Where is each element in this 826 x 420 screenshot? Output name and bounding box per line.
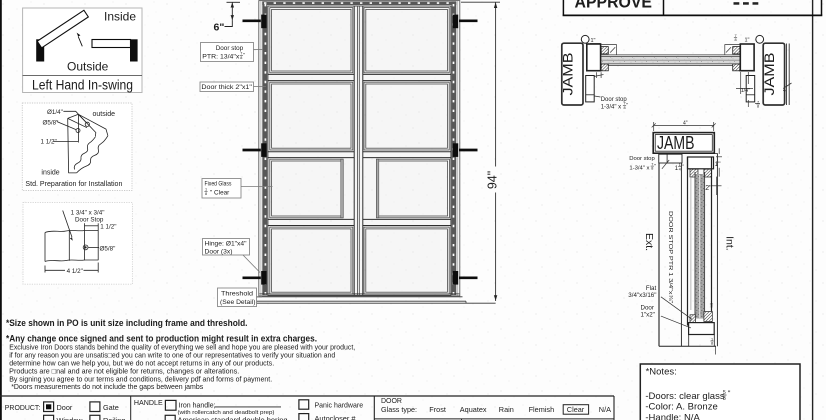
svg-text:Door stop: Door stop bbox=[629, 156, 655, 162]
svg-text:1-3/4" x: 1-3/4" x bbox=[629, 165, 649, 171]
svg-text:-Color: A. Bronze: -Color: A. Bronze bbox=[645, 402, 717, 413]
svg-text:Door (3x): Door (3x) bbox=[205, 249, 233, 256]
svg-text:Ø1/4": Ø1/4" bbox=[47, 109, 63, 116]
svg-text:Int.: Int. bbox=[724, 236, 736, 251]
svg-text:1 1/2": 1 1/2" bbox=[100, 223, 116, 230]
svg-text:Ø5/8": Ø5/8" bbox=[100, 245, 116, 252]
svg-text:Ext.: Ext. bbox=[643, 233, 655, 251]
svg-text:Flat: Flat bbox=[646, 285, 657, 292]
svg-text:Window: Window bbox=[57, 416, 84, 420]
svg-text:N/A: N/A bbox=[599, 405, 611, 414]
svg-text:Std. Preparation for Installat: Std. Preparation for Installation bbox=[25, 179, 122, 188]
svg-text:if for any reason you are unsa: if for any reason you are unsatis□ed you… bbox=[9, 351, 335, 359]
svg-text:Panic hardware: Panic hardware bbox=[315, 403, 364, 410]
svg-text:1"x2": 1"x2" bbox=[641, 312, 655, 319]
svg-text:Outside: Outside bbox=[67, 60, 109, 74]
svg-text:Door: Door bbox=[57, 403, 73, 412]
svg-text:Door: Door bbox=[641, 304, 654, 311]
svg-text:4": 4" bbox=[683, 121, 688, 127]
svg-text:": " bbox=[654, 164, 656, 170]
svg-text:Flemish: Flemish bbox=[529, 405, 555, 414]
svg-text:JAMB: JAMB bbox=[559, 53, 575, 96]
svg-text:Fixed Glass: Fixed Glass bbox=[205, 181, 232, 188]
svg-text:94": 94" bbox=[486, 171, 500, 189]
svg-text:By signing you agree to our te: By signing you agree to our terms and co… bbox=[9, 375, 272, 383]
svg-text:Clear: Clear bbox=[567, 405, 585, 414]
svg-text:1": 1" bbox=[745, 38, 750, 44]
svg-text:(with rollercatch and deadbolt: (with rollercatch and deadbolt prep) bbox=[178, 410, 275, 416]
svg-text:Glass type:: Glass type: bbox=[381, 405, 417, 414]
svg-text:inside: inside bbox=[41, 169, 59, 176]
svg-text:1 3/4" x 3/4": 1 3/4" x 3/4" bbox=[71, 209, 105, 216]
svg-text:": " bbox=[682, 164, 684, 170]
svg-text:DOOR STOP PTR 1 3/4"x⅞": DOOR STOP PTR 1 3/4"x⅞" bbox=[667, 211, 673, 303]
svg-text:Hinge: Ø1"x4": Hinge: Ø1"x4" bbox=[205, 241, 247, 248]
svg-text:6": 6" bbox=[214, 21, 225, 33]
svg-text:Autocloser #: Autocloser # bbox=[315, 416, 356, 420]
svg-text:1": 1" bbox=[591, 38, 596, 44]
svg-text:Ø5/8": Ø5/8" bbox=[43, 119, 59, 126]
svg-text:Door thick 2"x1": Door thick 2"x1" bbox=[201, 84, 252, 91]
svg-text:*Size shown in PO is unit size: *Size shown in PO is unit size including… bbox=[6, 318, 248, 328]
svg-text:Railing: Railing bbox=[103, 416, 125, 420]
svg-text:": " bbox=[728, 389, 731, 398]
svg-text:Exclusive Iron Doors stands be: Exclusive Iron Doors stands behind the q… bbox=[9, 344, 355, 352]
svg-text:PTR: 13/4"x: PTR: 13/4"x bbox=[202, 54, 240, 61]
svg-text:": " bbox=[243, 53, 245, 59]
svg-text:(See Detail): (See Detail) bbox=[220, 299, 256, 306]
svg-text:PRODUCT:: PRODUCT: bbox=[5, 403, 41, 412]
svg-text:" Clear: " Clear bbox=[210, 190, 230, 197]
svg-text:1": 1" bbox=[715, 161, 722, 168]
svg-text:outside: outside bbox=[93, 111, 116, 118]
svg-text:Products are □nal and are not: Products are □nal and are not eligible f… bbox=[9, 367, 239, 375]
svg-text:Frost: Frost bbox=[429, 405, 446, 414]
svg-text:APPROVE: APPROVE bbox=[575, 0, 653, 11]
svg-text:*Notes:: *Notes: bbox=[646, 367, 677, 378]
svg-text:Rain: Rain bbox=[499, 405, 514, 414]
svg-text:Iron handle;: Iron handle; bbox=[179, 403, 216, 410]
svg-text:1 1/2": 1 1/2" bbox=[41, 138, 57, 145]
svg-text:HANDLE: HANDLE bbox=[134, 398, 163, 407]
svg-text:1/4": 1/4" bbox=[741, 88, 750, 94]
svg-text:Left Hand In-swing: Left Hand In-swing bbox=[32, 78, 133, 94]
svg-text:1-3/4" x: 1-3/4" x bbox=[601, 105, 621, 111]
svg-text:Threshold: Threshold bbox=[221, 290, 253, 297]
svg-text:Aquatex: Aquatex bbox=[460, 405, 487, 414]
svg-text:Inside: Inside bbox=[104, 10, 136, 24]
svg-text:4": 4" bbox=[782, 87, 788, 92]
svg-text:determine how can we help you,: determine how can we help you, but we do… bbox=[9, 359, 274, 367]
svg-text:*Any change once signed and se: *Any change once signed and sent to prod… bbox=[6, 334, 317, 344]
svg-text:DOOR: DOOR bbox=[381, 396, 402, 405]
svg-text:JAMB: JAMB bbox=[657, 133, 695, 153]
svg-text:4 1/2": 4 1/2" bbox=[67, 268, 83, 275]
svg-text:*Doors measurements do not inc: *Doors measurements do not include the g… bbox=[11, 383, 203, 391]
svg-text:-Handle: N/A: -Handle: N/A bbox=[645, 412, 700, 420]
svg-text:3/4"x3/16": 3/4"x3/16" bbox=[628, 292, 656, 299]
svg-text:Gate: Gate bbox=[103, 403, 119, 412]
svg-text:": " bbox=[626, 103, 628, 109]
svg-text:-Doors: clear glass: -Doors: clear glass bbox=[645, 391, 724, 402]
svg-text:Door Stop: Door Stop bbox=[75, 216, 104, 223]
svg-text:JAMB: JAMB bbox=[761, 53, 777, 96]
svg-text:2": 2" bbox=[705, 185, 712, 192]
